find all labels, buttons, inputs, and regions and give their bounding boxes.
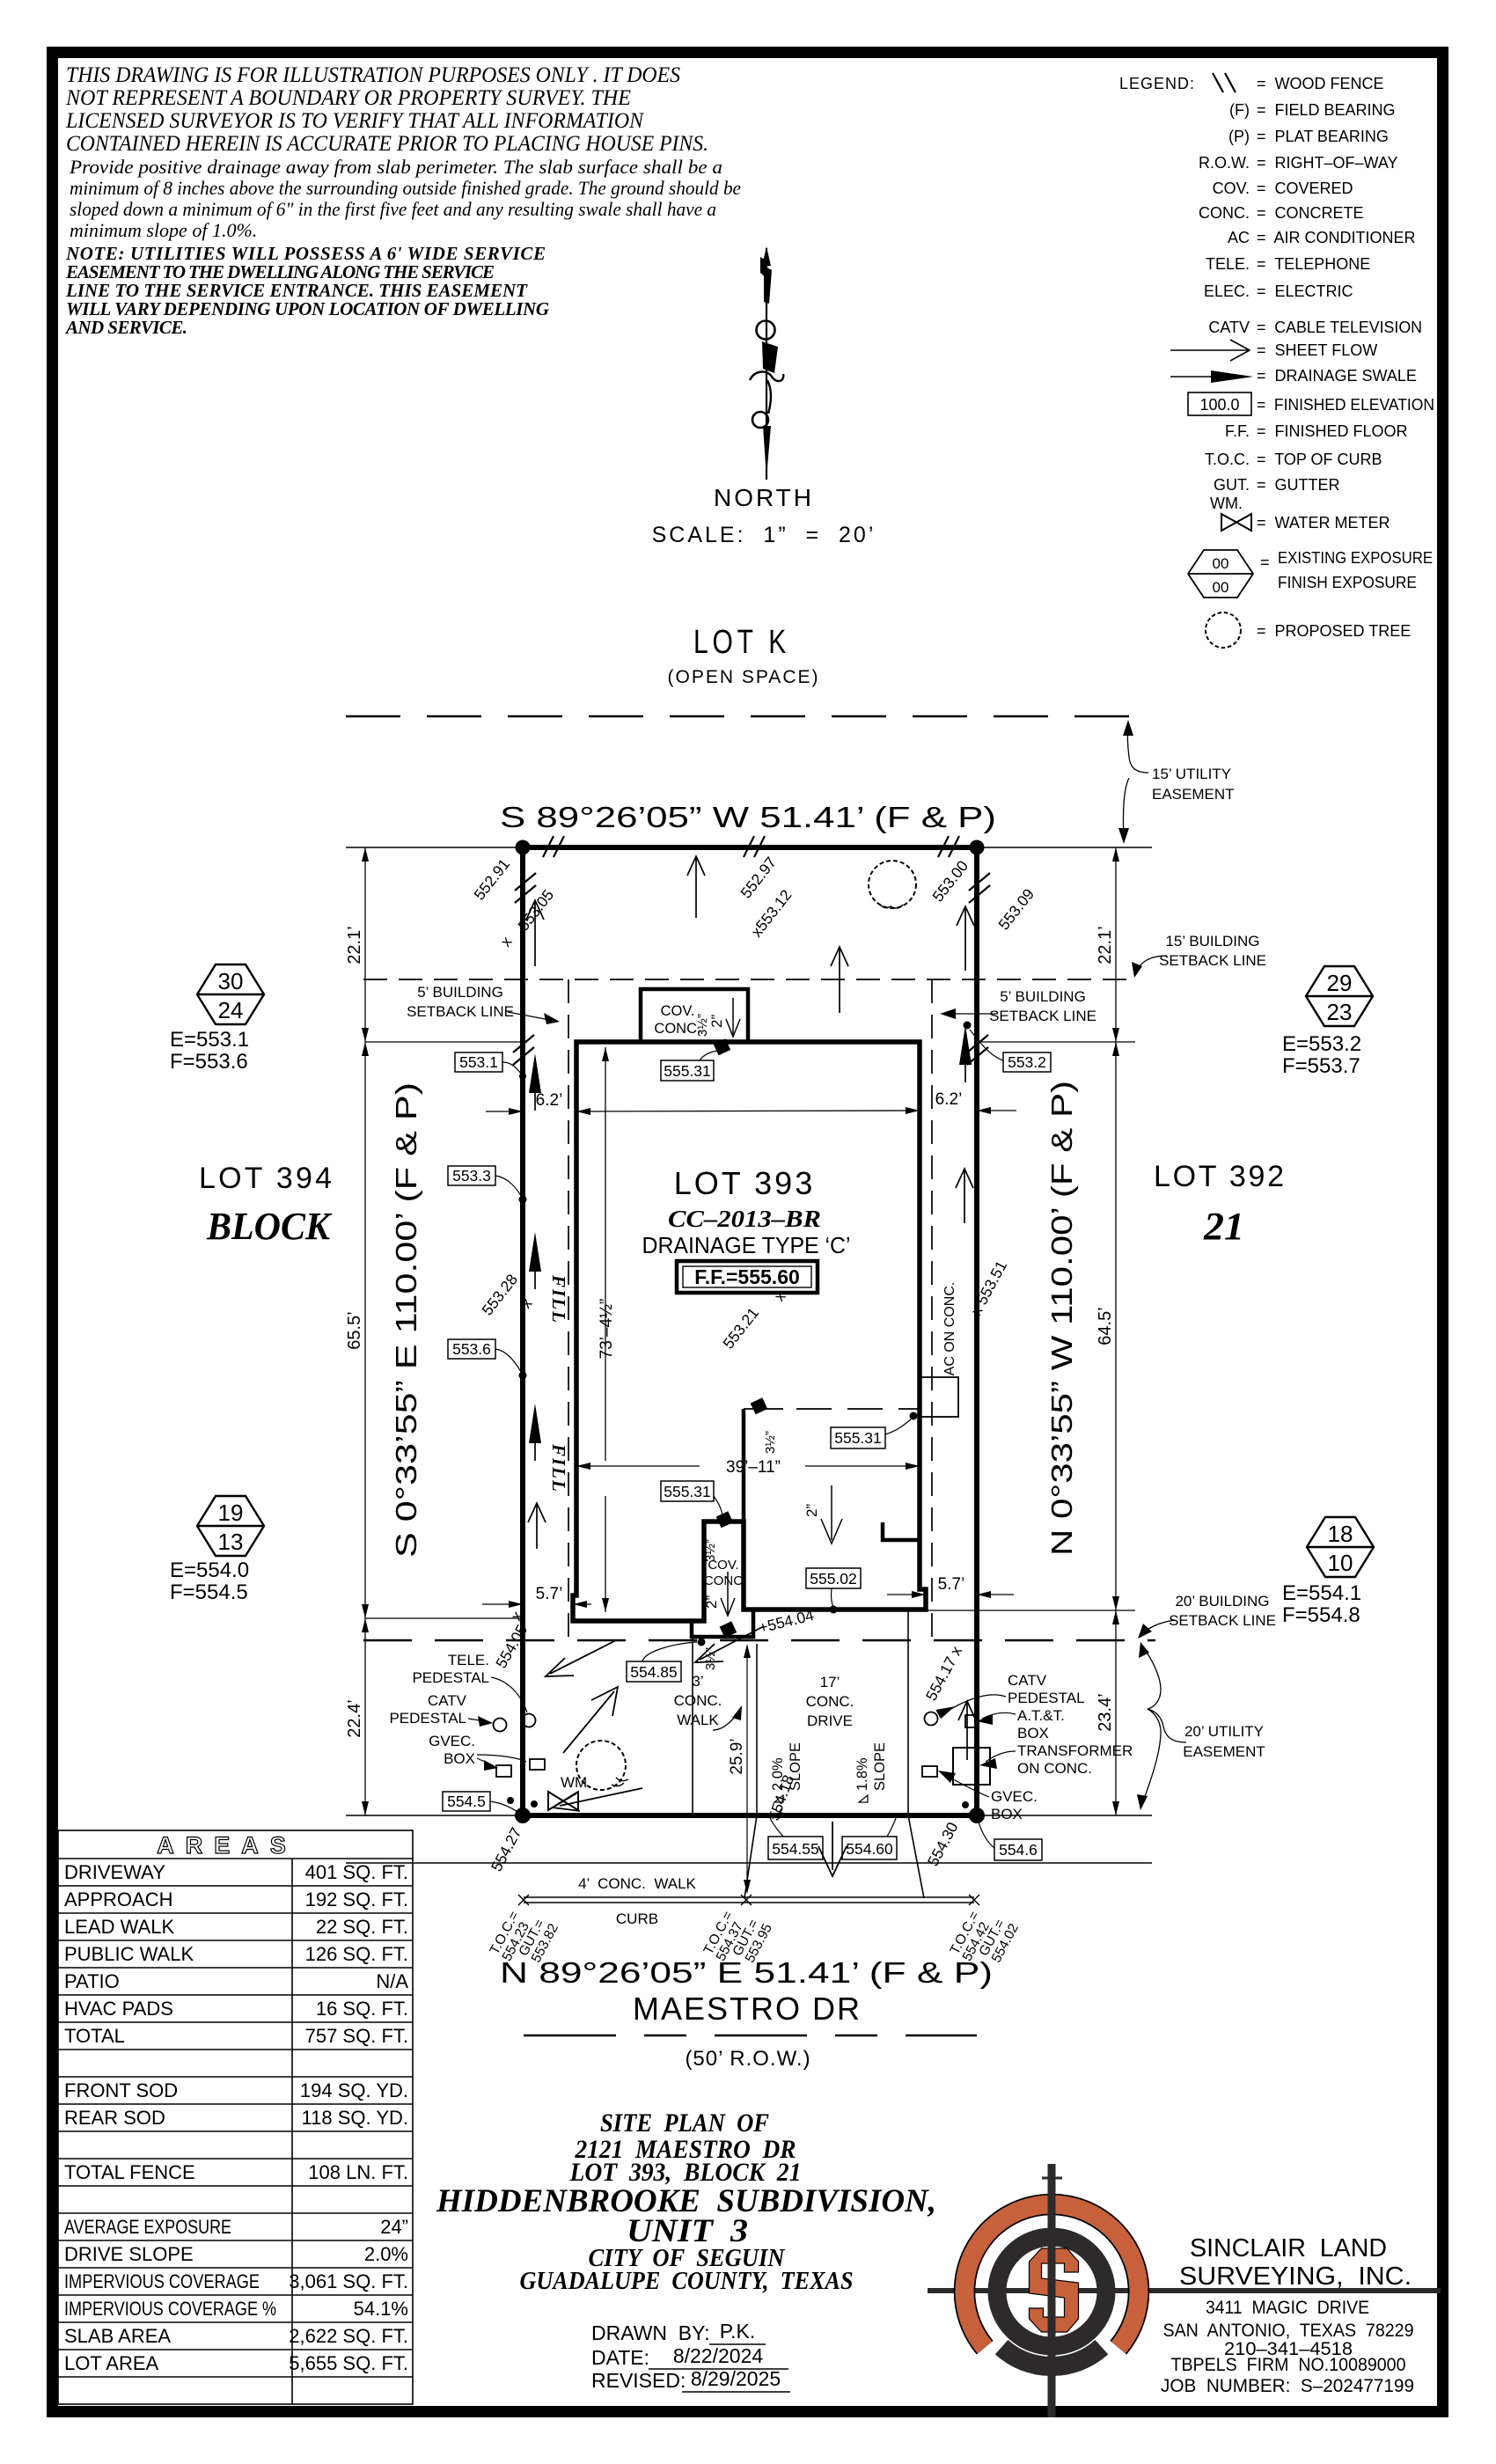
svg-text:DRAWN BY:: DRAWN BY:: [591, 2321, 710, 2344]
svg-text:1.8%: 1.8%: [854, 1757, 870, 1791]
svg-text:SURVEYING, INC.: SURVEYING, INC.: [1179, 2262, 1412, 2291]
svg-text:BOX: BOX: [1017, 1725, 1049, 1742]
svg-text:PUBLIC WALK: PUBLIC WALK: [64, 1943, 194, 1965]
svg-text:= WATER METER: = WATER METER: [1257, 514, 1390, 532]
svg-text:553.6: 553.6: [452, 1340, 491, 1358]
svg-text:6.2’: 6.2’: [536, 1091, 563, 1110]
svg-text:21: 21: [1203, 1205, 1244, 1248]
svg-text:AVERAGE EXPOSURE: AVERAGE EXPOSURE: [64, 2216, 231, 2238]
svg-text:23.4’: 23.4’: [1096, 1693, 1115, 1731]
svg-text:54.1%: 54.1%: [354, 2298, 408, 2320]
svg-text:4’ CONC. WALK: 4’ CONC. WALK: [578, 1875, 696, 1892]
svg-text:LICENSED SURVEYOR IS TO VERIFY: LICENSED SURVEYOR IS TO VERIFY THAT ALL …: [65, 107, 645, 133]
svg-text:S 0°33’55” E 110.00’ (F & P): S 0°33’55” E 110.00’ (F & P): [390, 1082, 422, 1558]
svg-text:N/A: N/A: [376, 1970, 408, 1992]
svg-text:TOTAL FENCE: TOTAL FENCE: [64, 2161, 195, 2183]
svg-text:20’ UTILITY: 20’ UTILITY: [1184, 1723, 1264, 1740]
svg-text:COV.: COV.: [661, 1003, 695, 1019]
svg-text:10: 10: [1328, 1550, 1353, 1576]
svg-text:SETBACK LINE: SETBACK LINE: [407, 1003, 514, 1020]
svg-text:5,655 SQ. FT.: 5,655 SQ. FT.: [289, 2352, 408, 2374]
svg-text:13: 13: [218, 1529, 244, 1555]
svg-text:COV.: COV.: [1213, 180, 1250, 197]
svg-text:IMPERVIOUS COVERAGE %: IMPERVIOUS COVERAGE %: [64, 2298, 276, 2320]
svg-text:20’ BUILDING: 20’ BUILDING: [1175, 1593, 1269, 1610]
svg-text:555.31: 555.31: [664, 1062, 711, 1080]
svg-text:5.7’: 5.7’: [938, 1575, 965, 1594]
svg-text:554.60: 554.60: [846, 1840, 893, 1858]
svg-text:= TELEPHONE: = TELEPHONE: [1257, 255, 1370, 273]
svg-text:N 89°26’05” E 51.41’ (F & P): N 89°26’05” E 51.41’ (F & P): [500, 1956, 993, 1989]
svg-text:HVAC PADS: HVAC PADS: [64, 1998, 173, 2020]
svg-text:BLOCK: BLOCK: [206, 1205, 332, 1248]
svg-text:15’ BUILDING: 15’ BUILDING: [1165, 933, 1259, 950]
svg-text:REAR SOD: REAR SOD: [64, 2107, 165, 2129]
svg-text:73’–4½”: 73’–4½”: [598, 1299, 616, 1360]
svg-text:FRONT SOD: FRONT SOD: [64, 2079, 178, 2101]
svg-text:sloped down a minimum of 6" in: sloped down a minimum of 6" in the first…: [70, 198, 716, 220]
svg-text:CATV: CATV: [428, 1692, 467, 1709]
svg-text:CATV: CATV: [1208, 319, 1250, 336]
svg-text:LOT AREA: LOT AREA: [64, 2352, 159, 2374]
svg-text:15’ UTILITY: 15’ UTILITY: [1152, 766, 1231, 782]
svg-text:GUT.: GUT.: [1214, 476, 1250, 494]
svg-text:SITE PLAN OF: SITE PLAN OF: [600, 2108, 769, 2138]
svg-text:WALK: WALK: [677, 1712, 719, 1728]
svg-text:= FINISHED FLOOR: = FINISHED FLOOR: [1257, 422, 1408, 440]
svg-text:= FINISHED ELEVATION: = FINISHED ELEVATION: [1257, 396, 1434, 414]
svg-text:LOT 394: LOT 394: [199, 1162, 338, 1195]
svg-text:LEAD WALK: LEAD WALK: [64, 1916, 174, 1938]
svg-text:TRANSFORMER: TRANSFORMER: [1017, 1742, 1133, 1759]
svg-text:TBPELS FIRM NO.10089000: TBPELS FIRM NO.10089000: [1171, 2355, 1406, 2375]
svg-text:F.F.=555.60: F.F.=555.60: [694, 1265, 800, 1288]
svg-text:DATE:: DATE:: [591, 2346, 649, 2369]
svg-text:WM.: WM.: [561, 1774, 591, 1791]
svg-text:AND SERVICE.: AND SERVICE.: [64, 317, 187, 338]
svg-text:IMPERVIOUS COVERAGE: IMPERVIOUS COVERAGE: [64, 2270, 260, 2292]
svg-text:5.7’: 5.7’: [536, 1585, 563, 1603]
svg-text:22.1’: 22.1’: [1096, 926, 1115, 964]
svg-text:118 SQ. YD.: 118 SQ. YD.: [302, 2107, 408, 2129]
svg-text:64.5’: 64.5’: [1096, 1307, 1115, 1345]
svg-text:= TOP OF CURB: = TOP OF CURB: [1257, 451, 1382, 468]
svg-text:554.85: 554.85: [630, 1663, 678, 1681]
svg-text:PEDESTAL: PEDESTAL: [412, 1669, 489, 1686]
svg-text:401 SQ. FT.: 401 SQ. FT.: [305, 1861, 408, 1883]
svg-text:GVEC.: GVEC.: [429, 1733, 475, 1749]
svg-text:= COVERED: = COVERED: [1257, 180, 1353, 197]
svg-text:= WOOD FENCE: = WOOD FENCE: [1257, 75, 1384, 92]
svg-text:E=554.0: E=554.0: [170, 1558, 249, 1582]
svg-text:39’–11”: 39’–11”: [726, 1458, 781, 1477]
svg-text:25.9’: 25.9’: [728, 1738, 746, 1774]
svg-text:553.3: 553.3: [452, 1167, 491, 1184]
svg-text:ELEC.: ELEC.: [1204, 282, 1250, 300]
svg-text:TOTAL: TOTAL: [64, 2025, 125, 2047]
svg-text:EXISTING EXPOSURE: EXISTING EXPOSURE: [1278, 549, 1433, 567]
svg-text:(50’ R.O.W.): (50’ R.O.W.): [685, 2047, 810, 2071]
svg-text:554.55: 554.55: [772, 1840, 819, 1858]
svg-text:ON CONC.: ON CONC.: [1017, 1760, 1092, 1777]
svg-text:BOX: BOX: [444, 1750, 475, 1767]
svg-text:65.5’: 65.5’: [345, 1311, 364, 1349]
svg-text:T.O.C.: T.O.C.: [1205, 451, 1250, 468]
svg-text:JOB NUMBER: S–202477199: JOB NUMBER: S–202477199: [1161, 2376, 1414, 2396]
svg-text:(F): (F): [1229, 101, 1250, 119]
svg-text:8/22/2024: 8/22/2024: [673, 2344, 764, 2367]
svg-text:EASEMENT: EASEMENT: [1152, 786, 1235, 803]
svg-text:DRIVE SLOPE: DRIVE SLOPE: [64, 2243, 194, 2265]
svg-text:= AIR CONDITIONER: = AIR CONDITIONER: [1257, 229, 1416, 246]
svg-text:5’ BUILDING: 5’ BUILDING: [1000, 988, 1086, 1005]
svg-text:S 89°26’05” W 51.41’ (F & P): S 89°26’05” W 51.41’ (F & P): [500, 801, 996, 833]
svg-text:SINCLAIR LAND: SINCLAIR LAND: [1190, 2234, 1387, 2262]
svg-text:= PLAT BEARING: = PLAT BEARING: [1257, 128, 1389, 145]
svg-text:3’: 3’: [692, 1673, 703, 1690]
svg-text:FINISH EXPOSURE: FINISH EXPOSURE: [1278, 574, 1417, 591]
svg-text:BOX: BOX: [991, 1806, 1023, 1822]
svg-text:553.1: 553.1: [459, 1053, 498, 1071]
svg-text:PEDESTAL: PEDESTAL: [389, 1710, 466, 1727]
svg-text:3411 MAGIC DRIVE: 3411 MAGIC DRIVE: [1206, 2298, 1369, 2318]
svg-text:= FIELD BEARING: = FIELD BEARING: [1257, 101, 1396, 119]
svg-text:22 SQ. FT.: 22 SQ. FT.: [316, 1916, 408, 1938]
svg-text:192 SQ. FT.: 192 SQ. FT.: [305, 1888, 408, 1910]
svg-text:E=553.2: E=553.2: [1282, 1032, 1361, 1056]
svg-text:E=554.1: E=554.1: [1282, 1581, 1361, 1605]
svg-text:30: 30: [218, 968, 244, 994]
svg-text:= SHEET FLOW: = SHEET FLOW: [1257, 341, 1377, 359]
svg-text:29: 29: [1327, 970, 1353, 996]
svg-text:23: 23: [1327, 999, 1353, 1025]
svg-text:24: 24: [218, 997, 244, 1023]
svg-text:minimum of 8 inches above the: minimum of 8 inches above the surroundin…: [70, 177, 741, 199]
svg-text:EASEMENT: EASEMENT: [1183, 1743, 1265, 1760]
svg-text:= PROPOSED TREE: = PROPOSED TREE: [1257, 622, 1411, 640]
svg-text:minimum slope of 1.0%.: minimum slope of 1.0%.: [70, 219, 257, 241]
svg-text:GVEC.: GVEC.: [991, 1788, 1038, 1805]
svg-text:TELE.: TELE.: [1206, 255, 1250, 273]
svg-text:NORTH: NORTH: [714, 484, 814, 511]
svg-text:24”: 24”: [380, 2216, 408, 2238]
svg-text:SLOPE: SLOPE: [872, 1742, 888, 1791]
svg-text:P.K.: P.K.: [720, 2320, 756, 2343]
svg-text:= DRAINAGE SWALE: = DRAINAGE SWALE: [1257, 367, 1417, 385]
svg-text:2”: 2”: [803, 1504, 820, 1517]
svg-text:= ELECTRIC: = ELECTRIC: [1257, 282, 1353, 300]
svg-text:CC–2013–BR: CC–2013–BR: [668, 1206, 821, 1232]
svg-text:LEGEND:: LEGEND:: [1119, 75, 1195, 92]
svg-text:WM.: WM.: [1210, 495, 1243, 512]
svg-text:LOT K: LOT K: [693, 624, 790, 661]
svg-text:108 LN. FT.: 108 LN. FT.: [308, 2161, 408, 2183]
svg-text:5’ BUILDING: 5’ BUILDING: [417, 984, 503, 1001]
svg-text:2”: 2”: [708, 1015, 725, 1028]
svg-text:F.F.: F.F.: [1225, 422, 1250, 440]
svg-text:2,622 SQ. FT.: 2,622 SQ. FT.: [289, 2325, 408, 2347]
svg-text:F=554.5: F=554.5: [170, 1580, 248, 1604]
svg-text:SCALE: 1” = 20’: SCALE: 1” = 20’: [652, 523, 876, 547]
svg-text:= CABLE TELEVISION: = CABLE TELEVISION: [1257, 319, 1422, 336]
svg-text:N 0°33’55” W 110.00’ (F & P): N 0°33’55” W 110.00’ (F & P): [1045, 1081, 1078, 1556]
svg-text:CATV: CATV: [1008, 1672, 1047, 1689]
svg-text:CONC.: CONC.: [654, 1021, 700, 1037]
svg-text:2”: 2”: [703, 1595, 720, 1609]
svg-text:17’: 17’: [820, 1674, 840, 1690]
svg-text:CONTAINED HEREIN IS ACCURATE P: CONTAINED HEREIN IS ACCURATE PRIOR TO PL…: [66, 130, 708, 156]
svg-text:18: 18: [1328, 1521, 1353, 1547]
svg-text:6.2’: 6.2’: [935, 1090, 963, 1109]
svg-text:TELE.: TELE.: [448, 1652, 489, 1668]
svg-text:CONC: CONC: [704, 1573, 743, 1588]
svg-text:553.2: 553.2: [1008, 1053, 1046, 1071]
svg-text:3,061 SQ. FT.: 3,061 SQ. FT.: [289, 2270, 408, 2292]
svg-text:R.O.W.: R.O.W.: [1199, 154, 1250, 172]
svg-text:126 SQ. FT.: 126 SQ. FT.: [305, 1943, 408, 1965]
svg-text:8/29/2025: 8/29/2025: [691, 2367, 781, 2390]
svg-text:554.5: 554.5: [447, 1793, 486, 1810]
svg-text:SETBACK LINE: SETBACK LINE: [989, 1008, 1096, 1024]
svg-text:555.02: 555.02: [810, 1570, 857, 1588]
svg-text:22.1’: 22.1’: [345, 926, 364, 964]
svg-text:Provide positive drainage away: Provide positive drainage away from slab…: [69, 156, 722, 178]
svg-text:E=553.1: E=553.1: [170, 1028, 249, 1052]
svg-text:LOT 392: LOT 392: [1154, 1160, 1290, 1193]
svg-text:(P): (P): [1228, 128, 1250, 145]
svg-text:DRIVEWAY: DRIVEWAY: [64, 1861, 165, 1883]
svg-text:AC: AC: [1228, 229, 1250, 246]
svg-text:SETBACK LINE: SETBACK LINE: [1169, 1612, 1276, 1629]
svg-text:757 SQ. FT.: 757 SQ. FT.: [305, 2025, 408, 2047]
svg-text:100.0: 100.0: [1199, 396, 1239, 414]
svg-text:AREAS: AREAS: [157, 1832, 297, 1859]
svg-text:SLAB AREA: SLAB AREA: [64, 2325, 171, 2347]
svg-text:F=553.6: F=553.6: [170, 1050, 248, 1074]
svg-text:19: 19: [218, 1500, 244, 1526]
svg-text:LOT 393: LOT 393: [674, 1165, 815, 1201]
svg-text:A.T.&T.: A.T.&T.: [1017, 1707, 1065, 1724]
svg-text:UNIT 3: UNIT 3: [627, 2213, 748, 2249]
svg-text:MAESTRO DR: MAESTRO DR: [633, 1991, 862, 2027]
svg-text:194 SQ. YD.: 194 SQ. YD.: [300, 2079, 408, 2101]
svg-text:FILL: FILL: [548, 1274, 569, 1324]
svg-text:00: 00: [1213, 579, 1229, 596]
svg-text:F=554.8: F=554.8: [1282, 1603, 1360, 1627]
svg-text:= CONCRETE: = CONCRETE: [1257, 204, 1364, 222]
svg-text:22.4’: 22.4’: [345, 1699, 364, 1737]
svg-text:SAN ANTONIO, TEXAS 78229: SAN ANTONIO, TEXAS 78229: [1163, 2321, 1414, 2341]
svg-text:3½”: 3½”: [703, 1539, 718, 1562]
svg-text:=: =: [1260, 554, 1270, 571]
svg-text:00: 00: [1213, 555, 1229, 572]
svg-text:= GUTTER: = GUTTER: [1257, 476, 1340, 494]
svg-text:DRAINAGE TYPE ‘C’: DRAINAGE TYPE ‘C’: [642, 1232, 851, 1258]
svg-text:CONC.: CONC.: [806, 1693, 854, 1710]
svg-text:THIS DRAWING IS FOR ILLUSTRATI: THIS DRAWING IS FOR ILLUSTRATION PURPOSE…: [66, 62, 680, 87]
svg-text:CONC.: CONC.: [674, 1692, 722, 1709]
svg-text:16 SQ. FT.: 16 SQ. FT.: [316, 1998, 408, 2020]
svg-text:CURB: CURB: [616, 1910, 658, 1927]
svg-text:GUADALUPE COUNTY, TEXAS: GUADALUPE COUNTY, TEXAS: [520, 2268, 854, 2295]
svg-text:555.31: 555.31: [664, 1483, 711, 1500]
svg-text:CONC.: CONC.: [1199, 204, 1250, 222]
svg-text:(OPEN SPACE): (OPEN SPACE): [668, 667, 820, 687]
svg-text:555.31: 555.31: [834, 1429, 882, 1447]
svg-text:2.0%: 2.0%: [364, 2243, 408, 2265]
svg-text:554.6: 554.6: [999, 1841, 1038, 1859]
svg-text:SETBACK LINE: SETBACK LINE: [1159, 952, 1266, 969]
svg-text:= RIGHT–OF–WAY: = RIGHT–OF–WAY: [1257, 154, 1398, 172]
svg-text:APPROACH: APPROACH: [64, 1888, 172, 1910]
svg-text:3½”: 3½”: [763, 1431, 778, 1454]
svg-text:PEDESTAL: PEDESTAL: [1008, 1690, 1085, 1706]
svg-text:PATIO: PATIO: [64, 1970, 120, 1992]
svg-text:AC ON CONC.: AC ON CONC.: [942, 1282, 957, 1376]
svg-text:DRIVE: DRIVE: [807, 1712, 853, 1729]
svg-text:REVISED:: REVISED:: [591, 2369, 686, 2392]
svg-text:F=553.7: F=553.7: [1282, 1054, 1360, 1078]
svg-text:NOT REPRESENT A BOUNDARY OR PR: NOT REPRESENT A BOUNDARY OR PROPERTY SUR…: [65, 84, 631, 110]
svg-text:FILL: FILL: [548, 1443, 569, 1493]
